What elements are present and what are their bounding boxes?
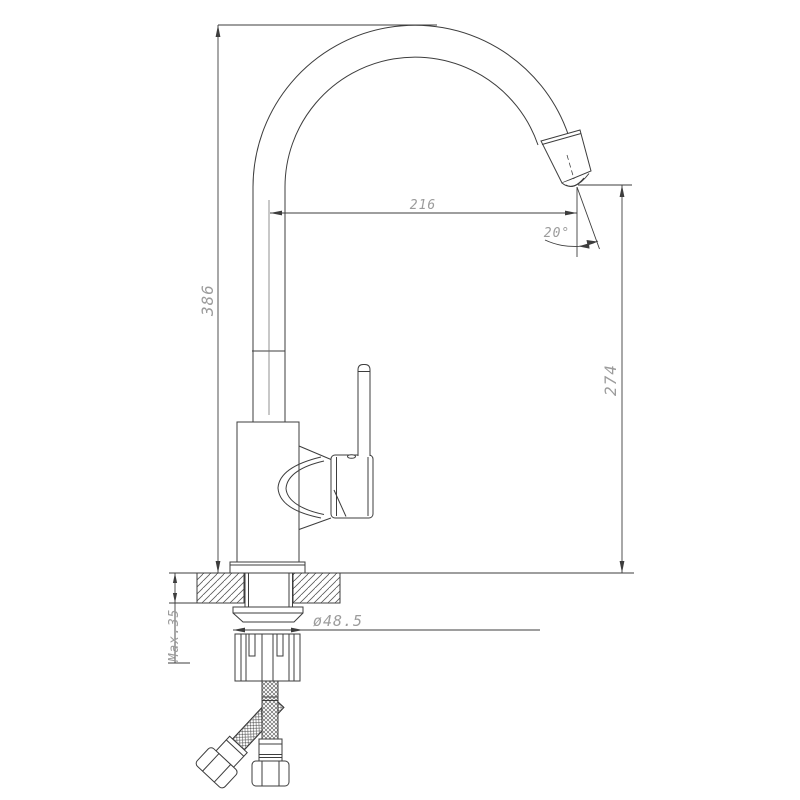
mounting-locknut — [235, 634, 300, 681]
spout-nozzle — [541, 130, 591, 186]
dim-spout-reach: 216 — [270, 198, 577, 215]
dim-label-shank-diameter: ø48.5 — [313, 612, 363, 630]
arrow-down-icon — [620, 561, 625, 573]
arrow-right-icon — [291, 628, 303, 633]
arrow-up-icon — [173, 573, 177, 583]
arrow-right-icon — [587, 240, 598, 245]
dim-label-spout-reach: 216 — [410, 198, 436, 213]
angle-reference-slanted — [577, 187, 600, 249]
arrow-left-icon — [233, 628, 245, 633]
dim-label-overall-height: 386 — [198, 284, 217, 317]
dim-label-outlet-angle: 20° — [544, 226, 570, 241]
arrow-down-icon — [216, 561, 221, 573]
countertop-hatch-left — [197, 573, 244, 603]
handle-cartridge — [331, 455, 373, 518]
vertical-hose-braid — [262, 681, 278, 739]
faucet-body — [237, 422, 299, 562]
spout-outer-arc — [253, 25, 568, 187]
mounting-flange — [233, 607, 303, 622]
arrow-right-icon — [565, 211, 577, 216]
arrow-up-icon — [620, 185, 625, 197]
arrow-left-icon — [270, 211, 282, 216]
faucet-technical-drawing: 386 216 274 20° ø48.5 Max — [0, 0, 800, 800]
spout-inner-arc — [285, 57, 538, 187]
countertop — [197, 573, 634, 603]
arrow-up-icon — [216, 25, 221, 37]
handle-lever — [358, 365, 370, 457]
arrow-down-icon — [173, 593, 177, 603]
faucet — [230, 25, 591, 573]
base-plate — [230, 562, 305, 573]
dim-overall-height: 386 — [198, 25, 437, 573]
dim-label-max-thickness: Max.35 — [167, 609, 182, 663]
mounting-shank — [245, 573, 293, 607]
dim-outlet-height: 274 — [578, 185, 632, 573]
vertical-hose-nut — [252, 761, 289, 786]
dim-outlet-angle: 20° — [544, 187, 600, 257]
dim-label-outlet-height: 274 — [601, 364, 620, 396]
spout-arc — [252, 25, 568, 422]
dim-max-thickness: Max.35 — [167, 573, 197, 663]
drawing-canvas: 386 216 274 20° ø48.5 Max — [0, 0, 800, 800]
countertop-hatch-right — [293, 573, 340, 603]
